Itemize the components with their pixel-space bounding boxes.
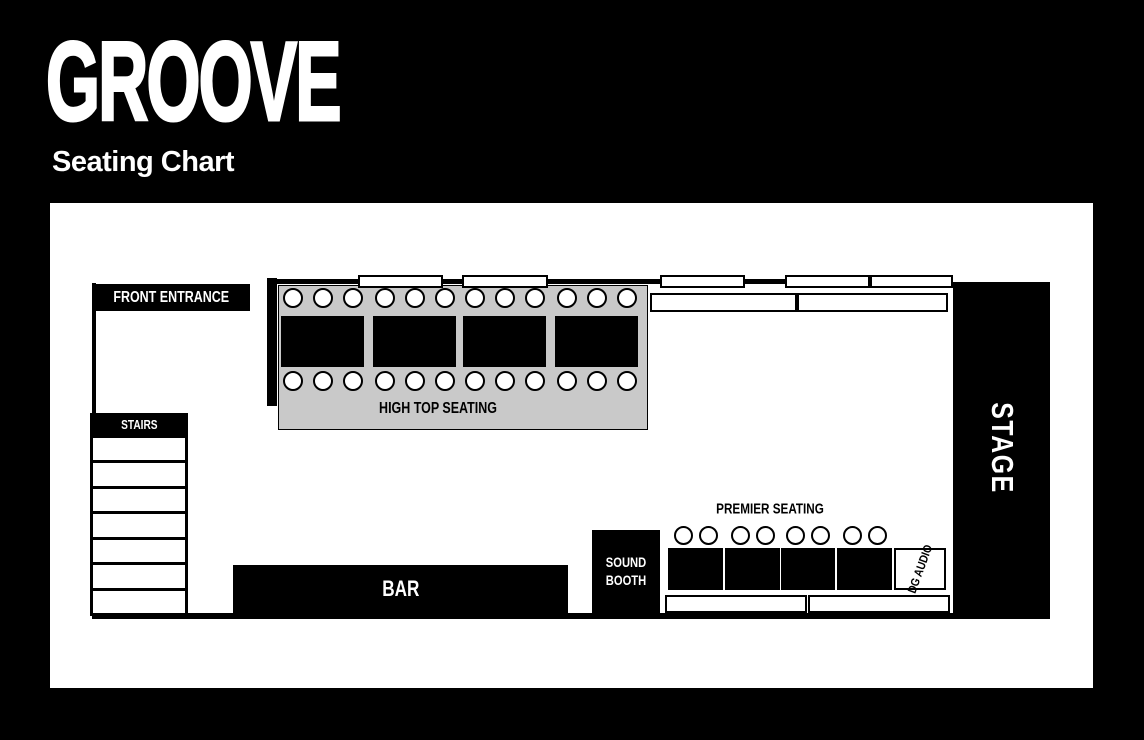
bottom-wall [92, 613, 1050, 619]
seat-circle [557, 371, 577, 391]
seat-circle [525, 371, 545, 391]
seat-circle [587, 288, 607, 308]
stair-step [90, 562, 188, 590]
premier-seating-label: PREMIER SEATING [716, 501, 824, 518]
seat-circle [495, 371, 515, 391]
seat-circle [283, 371, 303, 391]
high-top-table [463, 316, 546, 367]
seat-circle [313, 288, 333, 308]
wall-window [462, 275, 548, 288]
seat-circle [843, 526, 862, 545]
premier-table [781, 548, 835, 590]
seat-circle [343, 371, 363, 391]
seat-circle [587, 371, 607, 391]
sound-booth: SOUND BOOTH [592, 530, 660, 613]
stairs-header: STAIRS [90, 413, 188, 435]
seat-circle [699, 526, 718, 545]
seat-circle [617, 288, 637, 308]
wall-table [797, 293, 948, 312]
seat-circle [465, 371, 485, 391]
premier-table [668, 548, 723, 590]
seat-circle [868, 526, 887, 545]
high-top-table [373, 316, 456, 367]
stage: STAGE [953, 282, 1050, 614]
venue-logo: GROOVE [46, 26, 340, 138]
bench-table [665, 595, 807, 613]
stair-step [90, 588, 188, 616]
seat-circle [435, 288, 455, 308]
stair-step [90, 435, 188, 463]
wall-window [785, 275, 870, 288]
seat-circle [343, 288, 363, 308]
page: GROOVE Seating Chart FRONT ENTRANCE STAI… [0, 0, 1144, 740]
high-top-label: HIGH TOP SEATING [379, 400, 497, 418]
seat-circle [617, 371, 637, 391]
dg-audio-label: DG AUDIO [905, 543, 935, 595]
seat-circle [525, 288, 545, 308]
wall-table [650, 293, 797, 312]
seat-circle [435, 371, 455, 391]
seat-circle [495, 288, 515, 308]
high-top-table [555, 316, 638, 367]
wall-window [660, 275, 745, 288]
premier-table [725, 548, 780, 590]
wall-window [870, 275, 953, 288]
page-title: Seating Chart [52, 146, 234, 179]
bar-label: BAR [382, 576, 419, 602]
seat-circle [375, 288, 395, 308]
seat-circle [811, 526, 830, 545]
stair-step [90, 537, 188, 565]
dg-audio-booth: DG AUDIO [894, 548, 946, 590]
bar: BAR [233, 565, 568, 613]
stage-label: STAGE [984, 402, 1020, 494]
seat-circle [756, 526, 775, 545]
sound-booth-label: SOUND BOOTH [599, 554, 653, 589]
seat-circle [465, 288, 485, 308]
front-entrance: FRONT ENTRANCE [93, 284, 250, 311]
seat-circle [375, 371, 395, 391]
floor-plan: FRONT ENTRANCE STAIRS HIGH TOP SEATING S… [50, 203, 1093, 688]
seat-circle [405, 371, 425, 391]
entrance-wall-stub [267, 278, 277, 406]
stair-step [90, 460, 188, 488]
stair-step [90, 511, 188, 539]
seat-circle [405, 288, 425, 308]
seat-circle [674, 526, 693, 545]
front-entrance-label: FRONT ENTRANCE [114, 289, 230, 307]
seat-circle [313, 371, 333, 391]
seat-circle [786, 526, 805, 545]
seat-circle [283, 288, 303, 308]
high-top-table [281, 316, 364, 367]
stair-step [90, 486, 188, 514]
premier-table [837, 548, 892, 590]
stairs-label: STAIRS [121, 417, 157, 432]
stairs-steps [90, 435, 188, 616]
wall-window [358, 275, 443, 288]
seat-circle [731, 526, 750, 545]
bench-table [808, 595, 950, 613]
seat-circle [557, 288, 577, 308]
